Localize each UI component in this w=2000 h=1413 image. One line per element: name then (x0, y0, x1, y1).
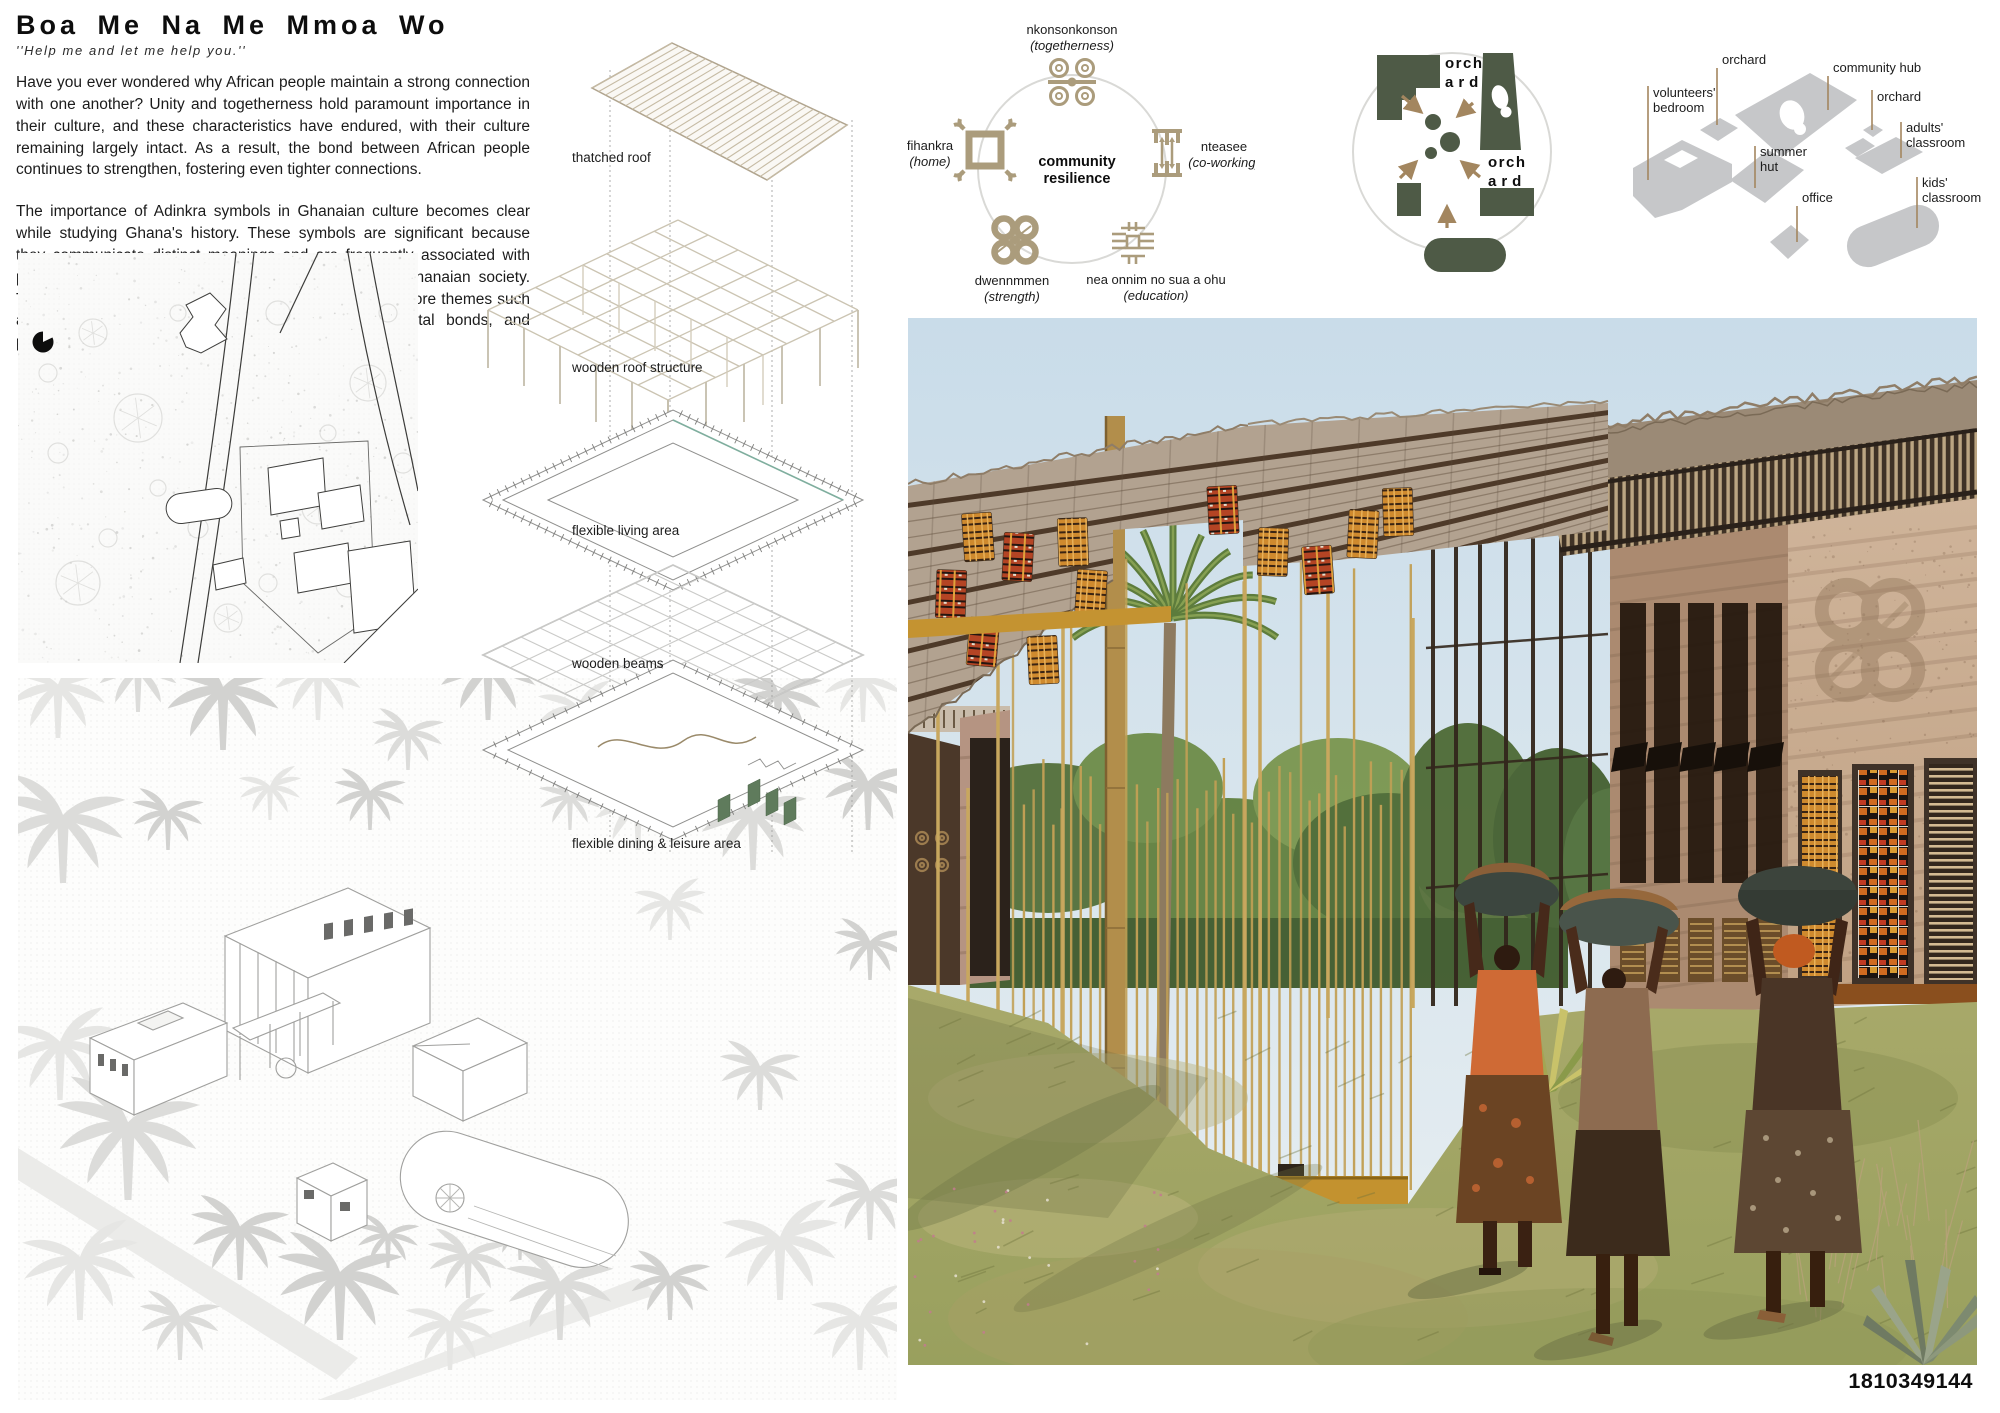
fihankra-symbol-icon (954, 119, 1016, 181)
nteasee-name: nteasee (1201, 139, 1247, 154)
fihankra-name: fihankra (907, 138, 954, 153)
label-wooden-beams: wooden beams (571, 656, 664, 671)
label-kids-1: kids' (1922, 175, 1948, 190)
orchard-label-top-1: orch (1445, 55, 1484, 72)
label-dining-leisure: flexible dining & leisure area (572, 836, 741, 851)
label-summer-2: hut (1760, 159, 1778, 174)
dining-leisure-layer (483, 660, 863, 840)
education-symbol-icon (1112, 222, 1154, 264)
dwennmmen-name: dwennmmen (975, 273, 1049, 288)
label-kids-2: classroom (1922, 190, 1981, 205)
label-summer-1: summer (1760, 144, 1808, 159)
label-volunteers-2: bedroom (1653, 100, 1704, 115)
label-living-area: flexible living area (572, 523, 680, 538)
orchard-label-top-2: ard (1445, 74, 1483, 91)
education-meaning: (education) (1123, 288, 1188, 303)
label-roof-structure: wooden roof structure (571, 360, 703, 375)
label-orchard-right: orchard (1877, 89, 1921, 104)
dwennmmen-meaning: (strength) (984, 289, 1040, 304)
program-site-diagram: orchard community hub volunteers' bedroo… (1620, 30, 1990, 292)
label-adults-2: classroom (1906, 135, 1965, 150)
courtyard-render (908, 318, 1977, 1365)
label-thatched-roof: thatched roof (572, 150, 651, 165)
center-label-line2: resilience (1044, 171, 1111, 187)
nteasee-meaning: (co-working) (1188, 155, 1255, 170)
adinkra-symbols-diagram: nkonsonkonson (togetherness) fihankra (h… (905, 0, 1255, 312)
living-area-layer (483, 410, 863, 590)
label-orchard-left: orchard (1722, 52, 1766, 67)
nkonsonkonson-symbol-icon (1048, 60, 1096, 105)
presentation-board: Boa Me Na Me Mmoa Wo ''Help me and let m… (0, 0, 2000, 1413)
massing-concept-diagram: orch ard orch ard (1330, 30, 1570, 282)
nkonsonkonson-meaning: (togetherness) (1030, 38, 1114, 53)
nteasee-symbol-icon (1152, 131, 1182, 175)
site-plan-drawing (18, 253, 418, 663)
nkonsonkonson-name: nkonsonkonson (1026, 22, 1117, 37)
label-adults-1: adults' (1906, 120, 1943, 135)
orchard-label-right-1: orch (1488, 154, 1527, 171)
left-earth-wall (908, 706, 1010, 985)
label-office: office (1802, 190, 1833, 205)
label-community-hub: community hub (1833, 60, 1921, 75)
orchard-label-right-2: ard (1488, 173, 1526, 190)
board-id-number: 1810349144 (1720, 1369, 1973, 1394)
dwennmmen-symbol-icon (995, 219, 1036, 262)
label-volunteers-1: volunteers' (1653, 85, 1715, 100)
education-name: nea onnim no sua a ohu (1086, 272, 1226, 287)
fihankra-meaning: (home) (909, 154, 950, 169)
center-label-line1: community (1038, 154, 1115, 170)
exploded-axonometric-diagram: thatched roof wooden roof structure flex… (448, 25, 905, 858)
